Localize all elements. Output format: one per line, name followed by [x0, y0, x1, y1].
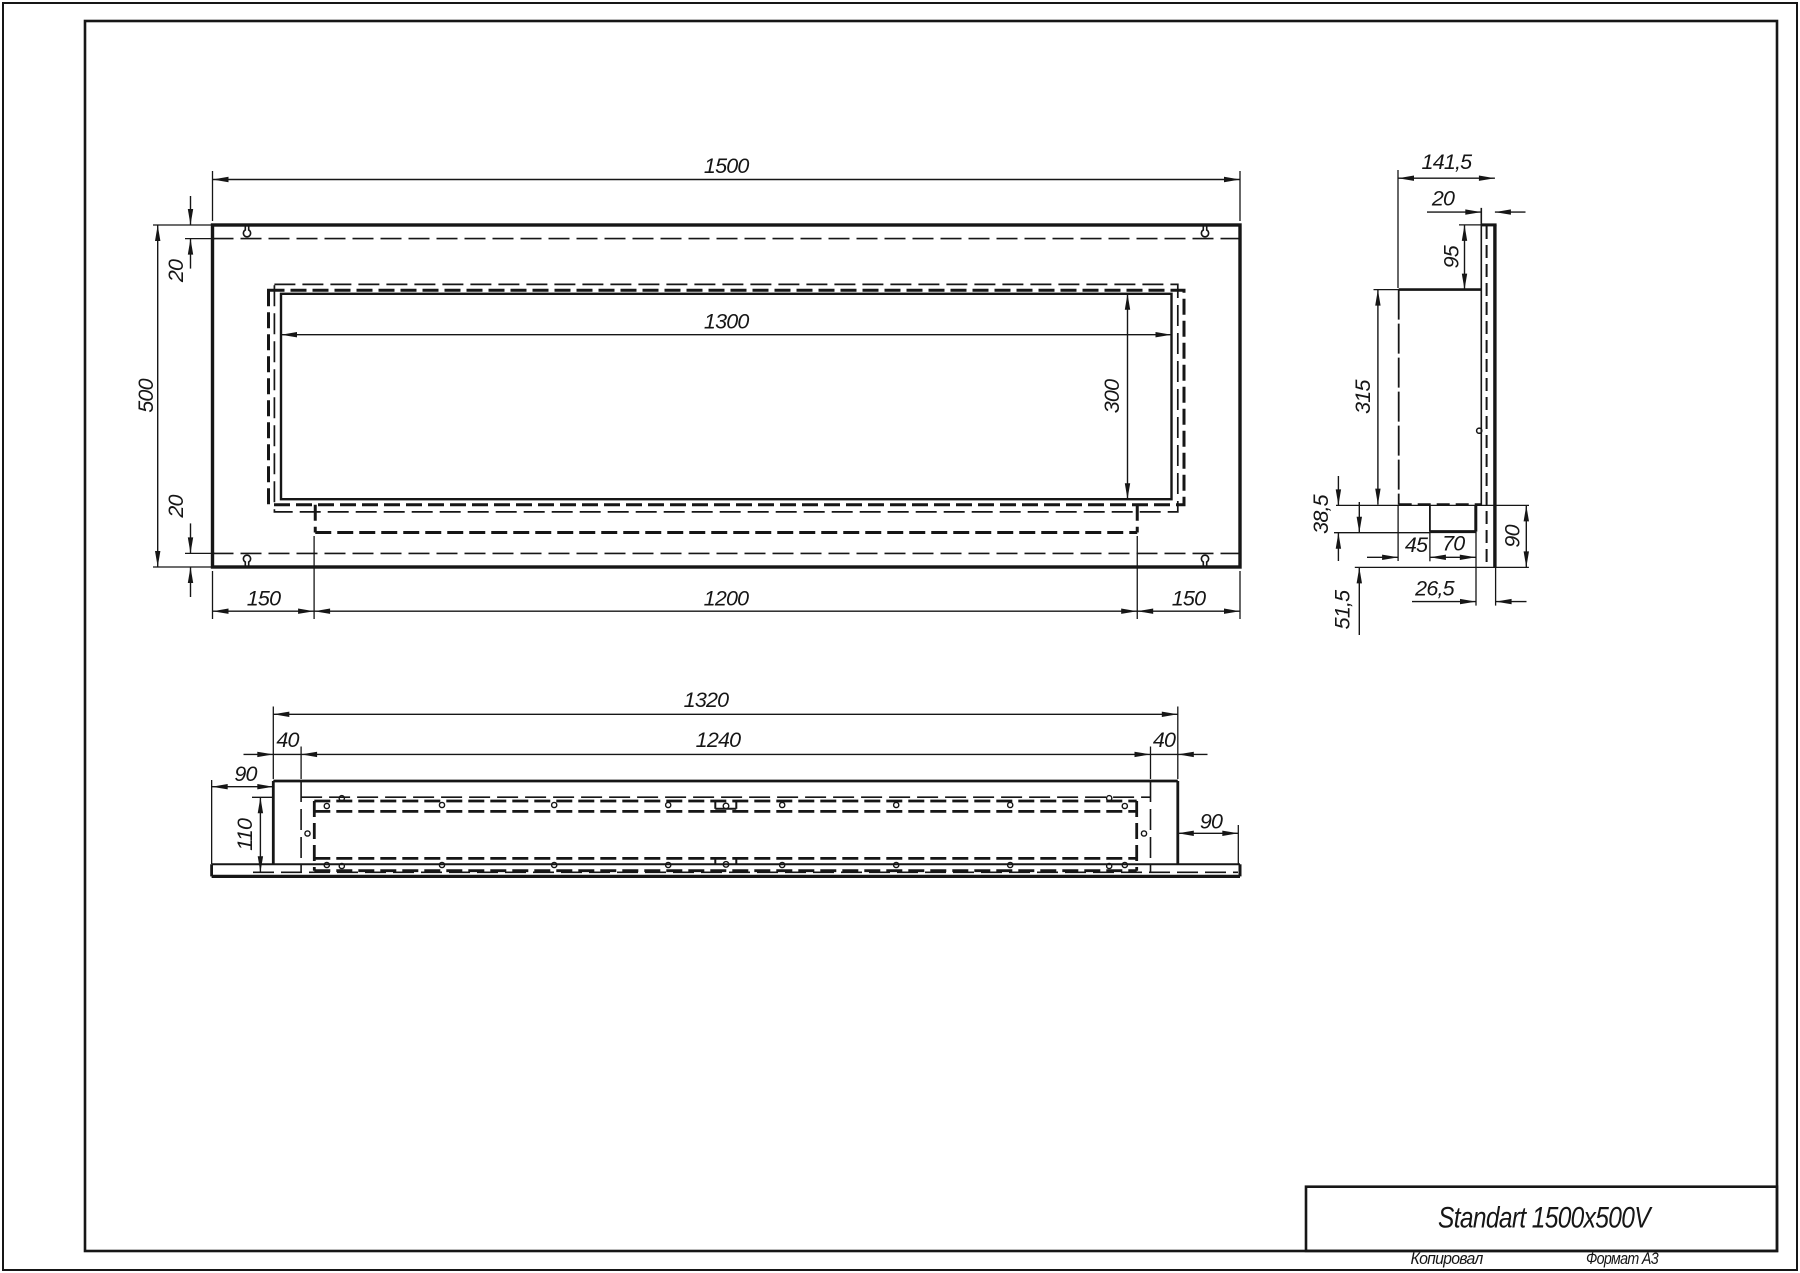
- svg-text:40: 40: [1153, 728, 1176, 752]
- svg-text:20: 20: [164, 259, 188, 283]
- svg-text:20: 20: [1431, 187, 1455, 211]
- svg-text:1200: 1200: [704, 587, 749, 611]
- svg-text:1300: 1300: [704, 310, 749, 334]
- svg-text:141,5: 141,5: [1422, 150, 1474, 174]
- svg-text:1240: 1240: [696, 728, 741, 752]
- svg-text:90: 90: [1501, 524, 1525, 547]
- svg-text:38,5: 38,5: [1309, 493, 1333, 533]
- svg-text:150: 150: [1172, 587, 1206, 611]
- svg-text:90: 90: [1200, 810, 1223, 834]
- svg-text:40: 40: [276, 728, 299, 752]
- svg-text:45: 45: [1405, 533, 1429, 557]
- svg-text:26,5: 26,5: [1414, 577, 1455, 601]
- svg-text:Копировал: Копировал: [1411, 1249, 1484, 1268]
- svg-text:110: 110: [233, 818, 257, 851]
- svg-text:20: 20: [164, 495, 188, 519]
- svg-text:1500: 1500: [704, 154, 749, 178]
- svg-text:315: 315: [1351, 379, 1375, 414]
- svg-text:70: 70: [1442, 532, 1465, 556]
- svg-text:500: 500: [134, 378, 158, 412]
- svg-text:Standart 1500x500V: Standart 1500x500V: [1438, 1201, 1653, 1234]
- svg-text:95: 95: [1440, 244, 1464, 268]
- svg-text:150: 150: [247, 587, 281, 611]
- svg-text:1320: 1320: [684, 688, 729, 712]
- svg-text:51,5: 51,5: [1331, 589, 1355, 629]
- svg-text:90: 90: [234, 762, 257, 786]
- svg-text:300: 300: [1100, 379, 1124, 413]
- svg-text:Формат А3: Формат А3: [1586, 1249, 1659, 1268]
